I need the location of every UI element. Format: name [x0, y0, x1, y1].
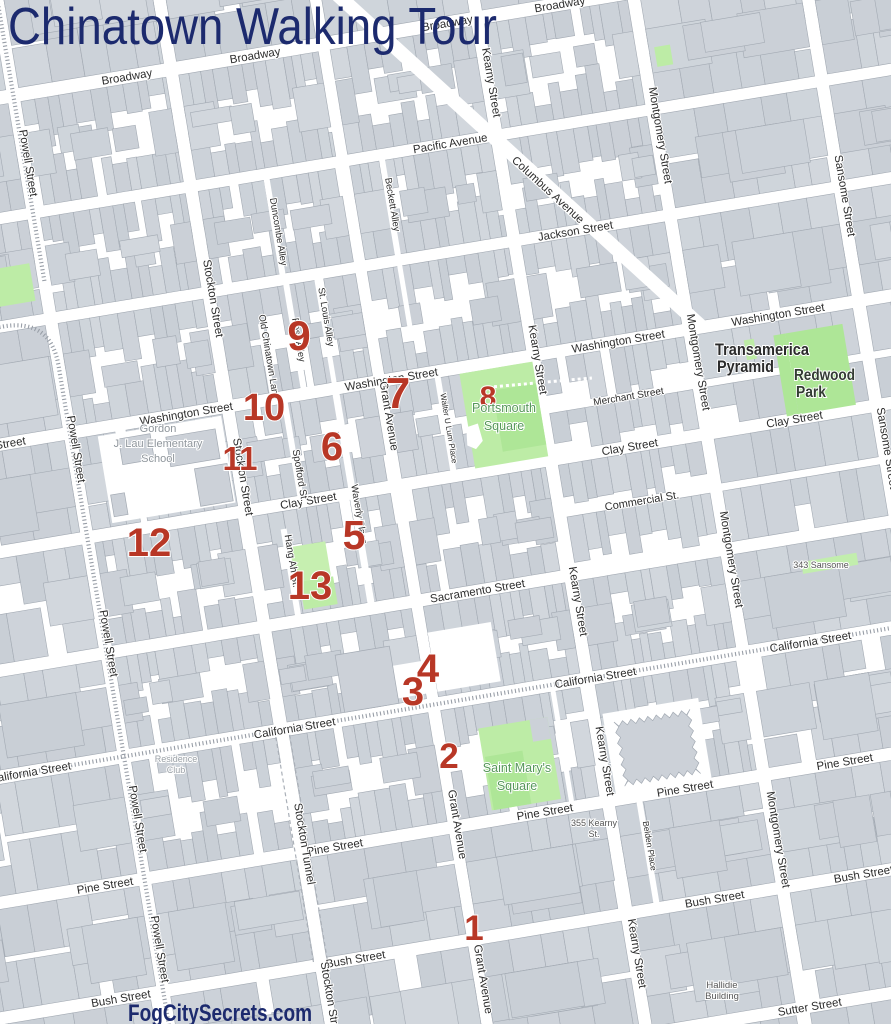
svg-text:Square: Square — [497, 779, 537, 793]
svg-text:3: 3 — [402, 670, 424, 714]
svg-text:1: 1 — [464, 909, 483, 948]
svg-text:Hallidie: Hallidie — [706, 980, 737, 991]
svg-text:343 Sansome: 343 Sansome — [793, 560, 849, 570]
svg-text:J. Lau Elementary: J. Lau Elementary — [114, 438, 203, 450]
svg-text:6: 6 — [321, 425, 343, 469]
svg-text:Club: Club — [167, 765, 186, 775]
svg-text:FogCitySecrets.com: FogCitySecrets.com — [128, 1000, 312, 1024]
svg-text:9: 9 — [287, 312, 310, 359]
svg-text:Square: Square — [484, 419, 524, 433]
svg-text:School: School — [141, 453, 175, 465]
svg-text:2: 2 — [439, 737, 458, 776]
svg-text:11: 11 — [223, 440, 258, 477]
svg-text:Building: Building — [705, 991, 739, 1002]
svg-text:Park: Park — [796, 384, 826, 401]
svg-text:Gordon: Gordon — [140, 423, 177, 435]
svg-text:St.: St. — [588, 829, 599, 839]
svg-text:13: 13 — [288, 564, 333, 608]
svg-text:355 Kearny: 355 Kearny — [571, 818, 618, 828]
svg-text:Portsmouth: Portsmouth — [472, 401, 536, 415]
svg-text:Redwood: Redwood — [794, 367, 855, 384]
svg-text:5: 5 — [343, 512, 366, 558]
svg-text:12: 12 — [127, 521, 172, 565]
svg-text:7: 7 — [386, 369, 410, 418]
svg-text:10: 10 — [243, 387, 285, 429]
svg-text:Chinatown Walking Tour: Chinatown Walking Tour — [8, 0, 497, 56]
svg-text:Saint Mary's: Saint Mary's — [483, 761, 551, 775]
svg-text:Pyramid: Pyramid — [717, 357, 774, 376]
svg-text:Residence: Residence — [155, 754, 198, 764]
